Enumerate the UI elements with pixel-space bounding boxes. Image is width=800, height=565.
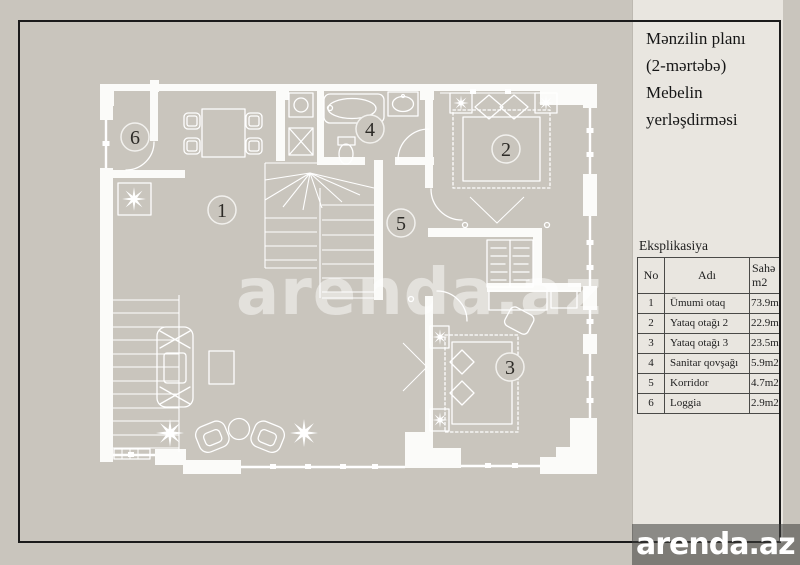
wardrobe-icon	[487, 240, 533, 287]
washing-machine-icon	[289, 93, 313, 155]
plant-icon	[290, 419, 318, 447]
bed-room3	[403, 326, 518, 432]
listing-image: Mənzilin planı (2-mərtəbə) Mebelin yerlə…	[0, 0, 800, 565]
svg-text:1: 1	[217, 200, 227, 222]
desk-icon	[489, 291, 577, 336]
svg-text:2: 2	[501, 139, 511, 161]
plant-icon	[156, 419, 184, 447]
staircase-main	[265, 163, 374, 298]
room-number-5: 5	[387, 209, 415, 237]
svg-text:3: 3	[505, 357, 515, 379]
svg-text:5: 5	[396, 213, 406, 235]
room-number-4: 4	[356, 115, 384, 143]
side-table-icon	[229, 419, 250, 440]
svg-text:6: 6	[130, 127, 140, 149]
armchair-icon	[193, 418, 232, 455]
floor-plan: 1 2 3 4 5 6	[0, 0, 800, 565]
walls	[100, 80, 597, 474]
room-number-2: 2	[492, 135, 520, 163]
armchair-icon	[248, 418, 287, 455]
room-number-1: 1	[208, 196, 236, 224]
dining-set	[184, 109, 262, 157]
sink-icon	[388, 92, 418, 116]
room-number-3: 3	[496, 353, 524, 381]
plant-icon	[118, 183, 151, 215]
room-number-6: 6	[121, 123, 149, 151]
svg-text:4: 4	[365, 119, 375, 141]
footer-logo-text: arenda.az	[632, 527, 795, 562]
footer-logo-band: arenda.az	[632, 524, 800, 565]
coffee-table-icon	[209, 351, 234, 384]
